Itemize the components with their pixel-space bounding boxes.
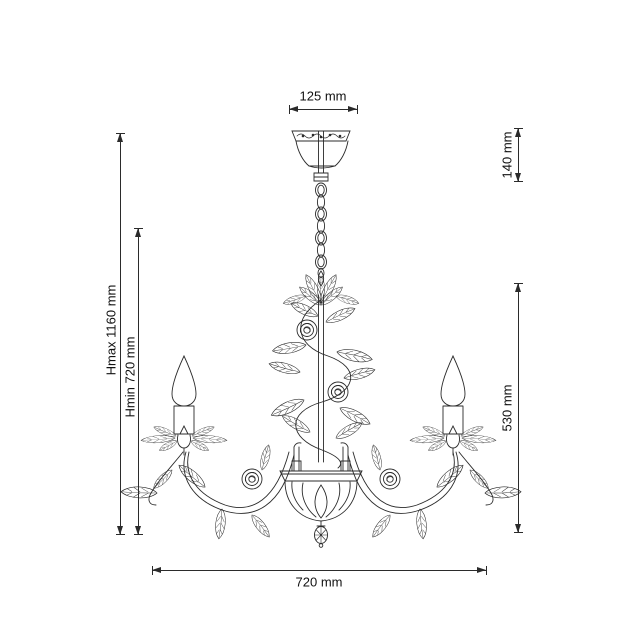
- dimension-tick: [152, 566, 153, 575]
- dimension-tick: [134, 228, 143, 229]
- dimension-tick: [116, 534, 125, 535]
- dimension-line: [120, 133, 121, 535]
- dimension-tick: [357, 105, 358, 114]
- dimension-tick: [134, 534, 143, 535]
- arrow-right-icon: [348, 106, 357, 112]
- dimension-line: [138, 228, 139, 535]
- arrow-up-icon: [515, 283, 521, 292]
- arrow-left-icon: [289, 106, 298, 112]
- arrow-left-icon: [152, 567, 161, 573]
- diagram-canvas: 125 mm Hmax 1160 mm Hmin 720 mm 140 mm 5…: [0, 0, 630, 630]
- dimension-tick: [514, 128, 523, 129]
- dimension-tick: [514, 532, 523, 533]
- arrow-right-icon: [477, 567, 486, 573]
- dimension-tick: [514, 181, 523, 182]
- dimension-line: [289, 109, 357, 110]
- dimension-tick: [116, 133, 125, 134]
- dimension-label-canopy-drop: 140 mm: [500, 132, 515, 179]
- dimension-label-top-width: 125 mm: [300, 89, 347, 104]
- dimension-tick: [289, 105, 290, 114]
- arrow-up-icon: [117, 133, 123, 142]
- dimension-label-height-min: Hmin 720 mm: [123, 337, 138, 418]
- dimension-label-fixture-width: 720 mm: [296, 575, 343, 590]
- dimension-tick: [486, 566, 487, 575]
- dimension-line: [152, 570, 486, 571]
- dimension-label-height-max: Hmax 1160 mm: [104, 285, 119, 376]
- dimension-tick: [514, 283, 523, 284]
- dimension-line: [518, 283, 519, 533]
- arrow-up-icon: [135, 228, 141, 237]
- arrow-up-icon: [515, 128, 521, 137]
- dimension-label-fixture-height: 530 mm: [500, 385, 515, 432]
